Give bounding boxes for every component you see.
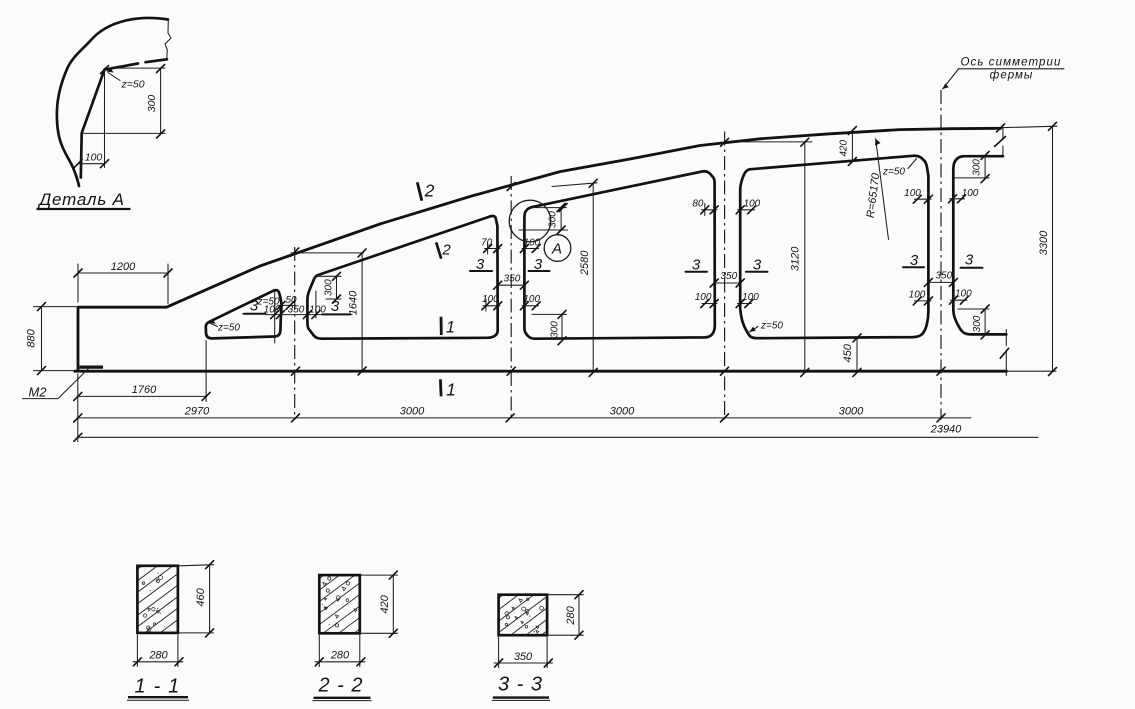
svg-text:280: 280	[148, 650, 168, 662]
svg-text:2580: 2580	[579, 250, 591, 276]
svg-text:23940: 23940	[930, 424, 962, 436]
svg-text:1: 1	[446, 319, 455, 337]
svg-text:z=50: z=50	[257, 297, 280, 308]
svg-text:450: 450	[842, 343, 854, 362]
svg-text:280: 280	[565, 605, 577, 625]
svg-text:350: 350	[514, 651, 533, 663]
svg-text:z=50: z=50	[217, 323, 240, 334]
svg-text:300: 300	[972, 159, 983, 176]
svg-text:3120: 3120	[790, 246, 802, 271]
svg-text:фермы: фермы	[990, 70, 1034, 82]
svg-text:100: 100	[955, 289, 972, 300]
svg-text:300: 300	[550, 321, 561, 338]
svg-text:80: 80	[692, 199, 704, 210]
svg-text:3000: 3000	[839, 406, 864, 418]
svg-text:300: 300	[324, 279, 335, 296]
svg-text:3: 3	[692, 256, 701, 273]
svg-text:3000: 3000	[400, 406, 425, 418]
svg-text:3 - 3: 3 - 3	[498, 674, 543, 696]
svg-text:3: 3	[250, 298, 259, 315]
svg-text:2970: 2970	[184, 406, 210, 418]
svg-text:3300: 3300	[1038, 230, 1050, 255]
svg-text:1200: 1200	[111, 261, 136, 273]
svg-text:2 - 2: 2 - 2	[317, 675, 363, 697]
svg-text:300: 300	[972, 315, 983, 332]
svg-text:3: 3	[965, 251, 974, 268]
svg-text:350: 350	[935, 270, 952, 281]
svg-text:z=50: z=50	[882, 166, 905, 177]
svg-text:z=50: z=50	[760, 320, 783, 331]
svg-text:420: 420	[379, 594, 391, 613]
svg-text:350: 350	[720, 271, 737, 282]
svg-text:z=50: z=50	[120, 78, 144, 90]
svg-text:3: 3	[753, 256, 762, 273]
svg-text:100: 100	[909, 289, 926, 300]
svg-text:880: 880	[26, 328, 38, 347]
svg-text:Ось симметрии: Ось симметрии	[960, 57, 1061, 69]
svg-text:А: А	[551, 241, 562, 258]
svg-text:420: 420	[839, 140, 850, 157]
svg-text:300: 300	[146, 95, 158, 113]
svg-text:1640: 1640	[347, 290, 359, 315]
svg-text:100: 100	[744, 199, 761, 210]
svg-text:350: 350	[504, 273, 521, 284]
svg-text:100: 100	[695, 292, 712, 303]
svg-text:Деталь А: Деталь А	[37, 190, 124, 209]
svg-text:М2: М2	[28, 385, 47, 400]
svg-text:460: 460	[195, 587, 207, 606]
svg-text:100: 100	[482, 294, 499, 305]
svg-text:100: 100	[85, 152, 103, 164]
svg-text:1: 1	[446, 380, 456, 400]
svg-text:2: 2	[424, 181, 435, 201]
svg-text:3000: 3000	[610, 406, 635, 418]
svg-text:280: 280	[330, 650, 350, 662]
svg-text:2: 2	[441, 242, 451, 259]
svg-text:1 - 1: 1 - 1	[134, 676, 180, 698]
svg-text:1760: 1760	[132, 384, 157, 396]
svg-text:70: 70	[481, 238, 493, 249]
svg-text:R=65170: R=65170	[865, 172, 882, 219]
